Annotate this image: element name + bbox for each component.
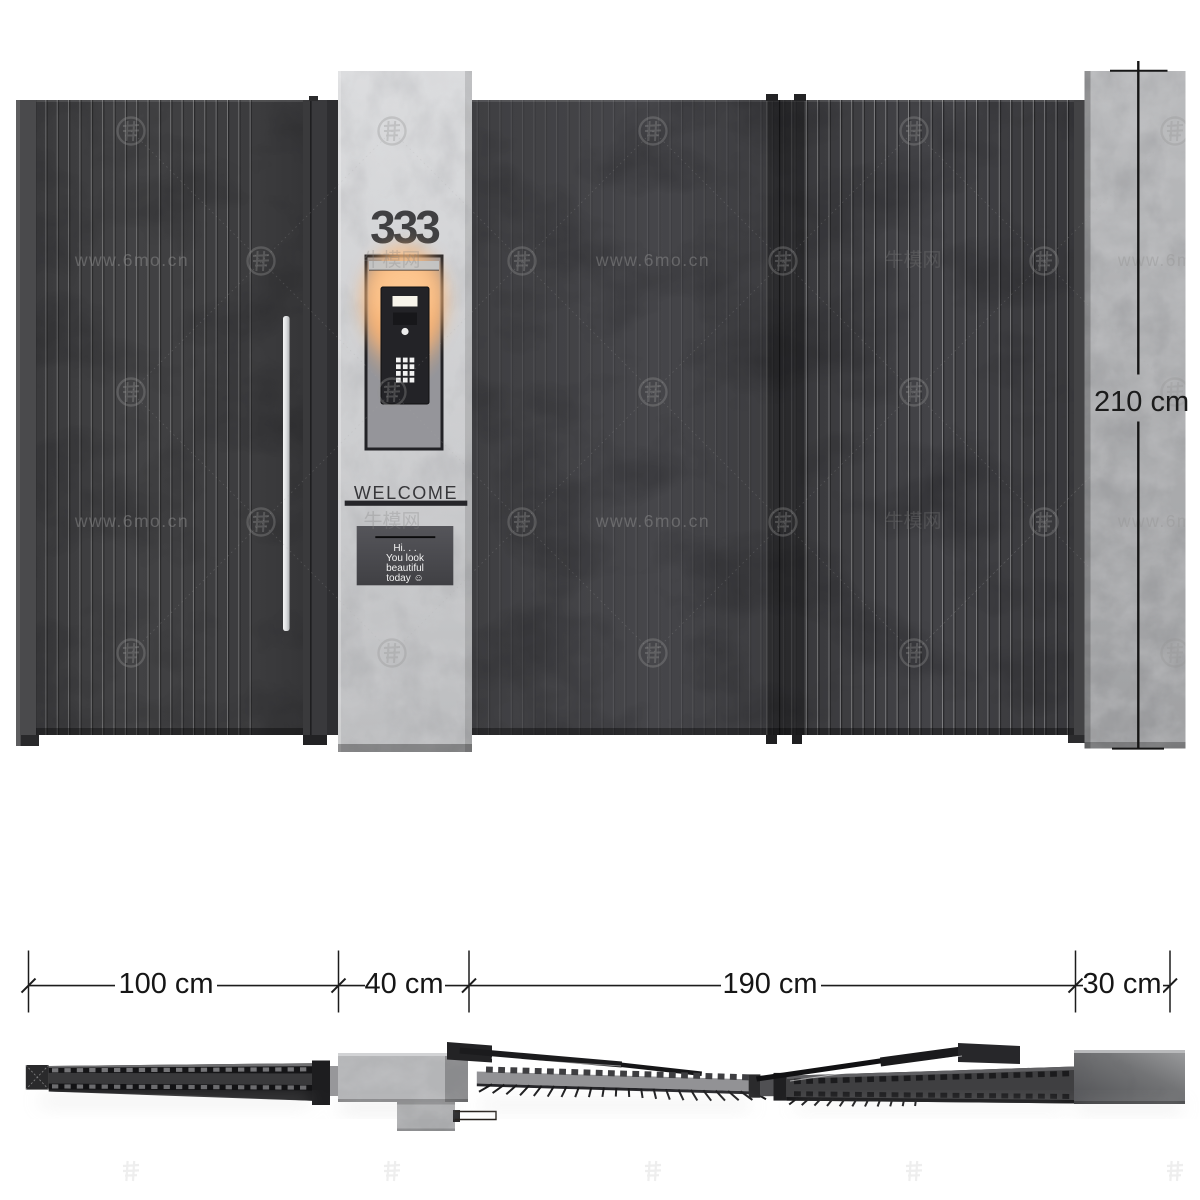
svg-text:210 cm: 210 cm bbox=[1094, 386, 1189, 418]
svg-text:www.6mo.cn: www.6mo.cn bbox=[595, 250, 710, 270]
svg-text:today ☺: today ☺ bbox=[386, 573, 423, 584]
svg-text:333: 333 bbox=[370, 201, 439, 253]
svg-text:40 cm: 40 cm bbox=[365, 968, 444, 1000]
svg-text:30 cm: 30 cm bbox=[1083, 968, 1162, 1000]
svg-text:100 cm: 100 cm bbox=[118, 968, 213, 1000]
svg-text:牛模网: 牛模网 bbox=[363, 510, 420, 532]
svg-text:牛模网: 牛模网 bbox=[363, 249, 420, 271]
svg-text:www.6mo.cn: www.6mo.cn bbox=[74, 511, 189, 531]
svg-text:牛模网: 牛模网 bbox=[884, 249, 941, 271]
svg-text:www.6mo.cn: www.6mo.cn bbox=[74, 250, 189, 270]
svg-text:WELCOME: WELCOME bbox=[354, 483, 458, 503]
svg-text:牛模网: 牛模网 bbox=[884, 510, 941, 532]
svg-text:www.6mo.cn: www.6mo.cn bbox=[595, 511, 710, 531]
svg-text:190 cm: 190 cm bbox=[722, 968, 817, 1000]
